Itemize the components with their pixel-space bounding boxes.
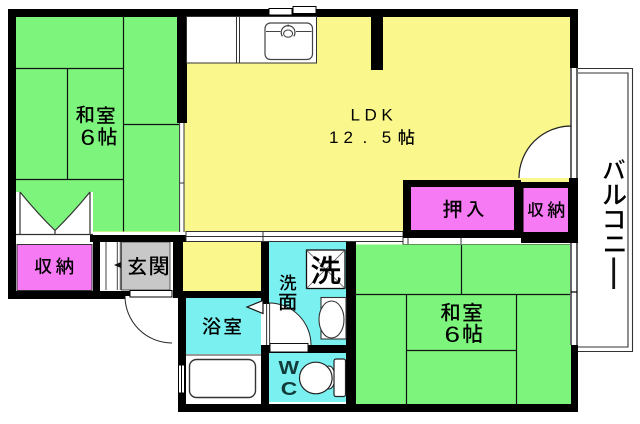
svg-text:W: W <box>279 358 300 378</box>
svg-text:6: 6 <box>81 125 96 150</box>
svg-text:5: 5 <box>382 128 391 147</box>
svg-text:.: . <box>363 128 368 147</box>
svg-text:6: 6 <box>445 322 461 347</box>
svg-text:LDK: LDK <box>351 106 398 125</box>
svg-text:C: C <box>281 379 298 399</box>
svg-text:1: 1 <box>329 128 338 147</box>
svg-text:2: 2 <box>344 128 353 147</box>
